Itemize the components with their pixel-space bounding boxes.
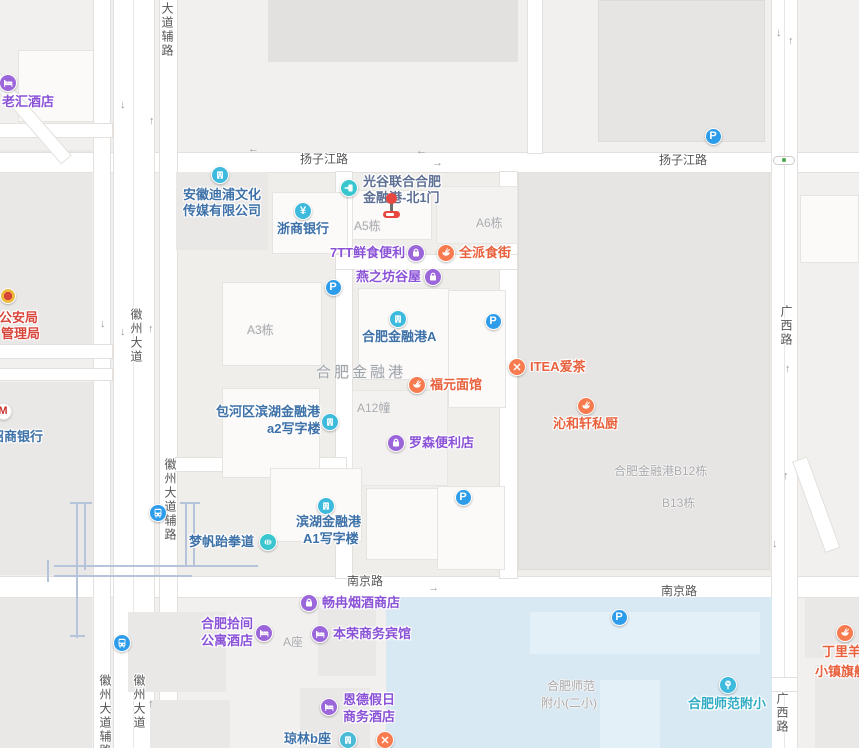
road-label: 大道辅路 <box>160 2 174 58</box>
emblem-icon[interactable] <box>0 288 16 304</box>
bag-icon[interactable] <box>407 244 425 262</box>
building-label: A座 <box>283 635 303 649</box>
ende-holiday-hotel-label[interactable]: 商务酒店 <box>343 709 395 725</box>
cmb-icon[interactable]: M <box>0 403 12 420</box>
dingliyang-flagship-label[interactable]: 丁里羊 <box>822 644 859 660</box>
bed-icon[interactable] <box>320 698 338 716</box>
hefei-shijian-apartment-hotel-label[interactable]: 合肥拾间 <box>201 616 253 632</box>
public-security-bureau-label[interactable]: 管理局 <box>1 326 40 342</box>
guanggu-finance-port-north-gate1-label[interactable]: 金融港-北1门 <box>363 190 440 206</box>
road-label: 徽州大道辅路 <box>163 458 177 542</box>
traffic-direction-arrow: ↓ <box>120 327 126 338</box>
qionglin-b-block-label[interactable]: 琼林b座 <box>284 731 331 747</box>
fist-icon[interactable] <box>259 533 277 551</box>
building-label: A5栋 <box>354 219 381 233</box>
baohequ-binhu-a2-office-label[interactable]: 包河区滨湖金融港 <box>216 404 320 420</box>
building-icon[interactable] <box>211 166 229 184</box>
bag-icon[interactable] <box>387 434 405 452</box>
map-canvas[interactable]: 扬子江路扬子江路南京路南京路大道辅路徽州大道徽州大道辅路徽州大道徽州大道辅路广西… <box>0 0 859 748</box>
bus-icon[interactable] <box>149 504 167 522</box>
bowl-icon[interactable] <box>836 624 854 642</box>
parking-icon[interactable]: P <box>611 609 628 626</box>
building-icon[interactable] <box>339 731 357 748</box>
building-icon[interactable] <box>321 413 339 431</box>
fuyuan-noodle-label[interactable]: 福元面馆 <box>430 377 482 393</box>
hefei-shifan-fuxiao-label[interactable]: 合肥师范附小 <box>688 696 766 712</box>
guanggu-finance-port-north-gate1-label[interactable]: 光谷联合合肥 <box>363 174 441 190</box>
road-label: 广西路 <box>779 305 793 347</box>
traffic-direction-arrow: ↑ <box>788 36 794 47</box>
gate-marker-bar <box>383 211 400 218</box>
building-label: 合肥金融港B12栋 <box>614 464 707 478</box>
traffic-direction-arrow: ← <box>416 146 427 157</box>
traffic-light-icon <box>773 156 795 165</box>
qinhexuan-kitchen-label[interactable]: 沁和轩私厨 <box>553 416 618 432</box>
traffic-direction-arrow: ↑ <box>783 471 789 482</box>
utensils-icon[interactable] <box>376 731 394 748</box>
building-label: B13栋 <box>662 496 695 510</box>
traffic-direction-arrow: ↓ <box>100 319 106 330</box>
traffic-direction-arrow: ↑ <box>148 699 154 710</box>
traffic-direction-arrow: ↓ <box>120 100 126 111</box>
ende-holiday-hotel-label[interactable]: 恩德假日 <box>343 692 395 708</box>
building-label: 合肥金融港 <box>316 366 406 380</box>
parking-icon[interactable]: P <box>705 128 722 145</box>
road-label: 徽州大道辅路 <box>98 674 112 748</box>
parking-icon[interactable]: P <box>455 489 472 506</box>
road-label: 南京路 <box>347 574 383 588</box>
public-security-bureau-label[interactable]: 市公安局 <box>0 310 38 326</box>
traffic-direction-arrow: → <box>432 158 443 169</box>
zheshang-bank-label[interactable]: 浙商银行 <box>277 221 329 237</box>
utensils-icon[interactable] <box>508 358 526 376</box>
quanpai-food-street-label[interactable]: 全派食街 <box>459 245 511 261</box>
road-label: 扬子江路 <box>659 153 707 167</box>
bowl-icon[interactable] <box>577 397 595 415</box>
entrance-icon[interactable] <box>340 179 358 197</box>
bag-icon[interactable] <box>424 268 442 286</box>
road-label: 南京路 <box>661 584 697 598</box>
gate-marker[interactable] <box>386 193 397 204</box>
hefei-shijian-apartment-hotel-label[interactable]: 公寓酒店 <box>201 633 253 649</box>
binhu-a1-office-label[interactable]: 滨湖金融港 <box>296 514 361 530</box>
bowl-icon[interactable] <box>408 376 426 394</box>
laohui-hotel-label[interactable]: 老汇酒店 <box>2 94 54 110</box>
road-label: 徽州大道 <box>129 308 143 364</box>
cmb-bank-label[interactable]: 招商银行 <box>0 429 43 445</box>
bed-icon[interactable] <box>311 625 329 643</box>
building-icon[interactable] <box>389 310 407 328</box>
dingliyang-flagship-label[interactable]: 小镇旗舰店 <box>815 664 859 680</box>
road-label: 徽州大道 <box>132 674 146 730</box>
traffic-direction-arrow: ↑ <box>149 116 155 127</box>
traffic-direction-arrow: → <box>428 583 439 594</box>
building-icon[interactable] <box>317 497 335 515</box>
building-label: A12幢 <box>357 401 390 415</box>
baohequ-binhu-a2-office-label[interactable]: a2写字楼 <box>267 421 320 437</box>
building-label: A6栋 <box>476 216 503 230</box>
tree-icon[interactable] <box>719 676 737 694</box>
bag-icon[interactable] <box>300 594 318 612</box>
anhui-dipu-media-company-label[interactable]: 传媒有限公司 <box>183 203 261 219</box>
traffic-direction-arrow: ↓ <box>776 28 782 39</box>
anhui-dipu-media-company-label[interactable]: 安徽迪浦文化 <box>183 187 261 203</box>
traffic-direction-arrow: ← <box>248 144 259 155</box>
traffic-direction-arrow: ↓ <box>772 539 778 550</box>
yuan-icon[interactable]: ¥ <box>294 202 312 220</box>
bed-icon[interactable] <box>255 624 273 642</box>
changran-tobacco-shop-label[interactable]: 畅冉烟酒商店 <box>322 595 400 611</box>
parking-icon[interactable]: P <box>485 313 502 330</box>
lawson-store-label[interactable]: 罗森便利店 <box>409 435 474 451</box>
labels-layer: 扬子江路扬子江路南京路南京路大道辅路徽州大道徽州大道辅路徽州大道徽州大道辅路广西… <box>0 0 859 748</box>
yanzhifang-guwu-label[interactable]: 燕之坊谷屋 <box>356 269 421 285</box>
hefei-finance-port-a-label[interactable]: 合肥金融港A <box>362 329 436 345</box>
building-label: A3栋 <box>247 323 274 337</box>
road-label: 广西路 <box>775 692 789 734</box>
parking-icon[interactable]: P <box>325 279 342 296</box>
7tt-fresh-food-store-label[interactable]: 7TT鲜食便利 <box>330 245 405 261</box>
binhu-a1-office-label[interactable]: A1写字楼 <box>303 531 359 547</box>
traffic-direction-arrow: ↑ <box>148 324 154 335</box>
mengfan-taekwondo-label[interactable]: 梦帆跆拳道 <box>189 534 254 550</box>
bowl-icon[interactable] <box>437 244 455 262</box>
road-label: 扬子江路 <box>300 152 348 166</box>
itea-tea-label[interactable]: ITEA爱茶 <box>530 359 586 375</box>
building-label: 附小(二小) <box>541 696 597 710</box>
benrong-business-hotel-label[interactable]: 本荣商务宾馆 <box>333 626 411 642</box>
bed-icon[interactable] <box>0 74 17 92</box>
bus-icon[interactable] <box>113 634 131 652</box>
building-label: 合肥师范 <box>547 679 595 693</box>
traffic-direction-arrow: ↑ <box>785 364 791 375</box>
